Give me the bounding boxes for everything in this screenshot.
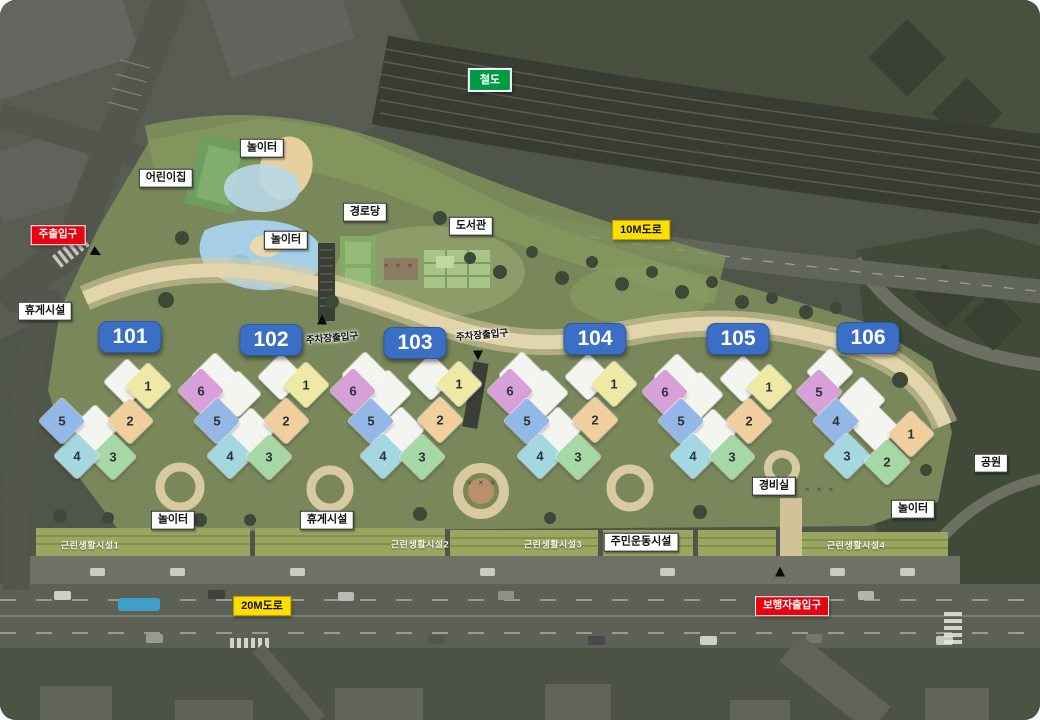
unit-number: 3 [716, 441, 749, 474]
site-map: 1234565432165432165432165432154321✕ ✕ ✕✕… [0, 0, 1040, 720]
building-badge-101[interactable]: 101 [98, 321, 161, 353]
unit-number: 5 [511, 405, 544, 438]
building-unit-102-1: 1 [283, 362, 330, 409]
unit-number: 3 [406, 441, 439, 474]
badge-railway: 철도 [468, 68, 512, 92]
unit-number: 5 [201, 405, 234, 438]
label-senior-center: 경로당 [343, 203, 387, 222]
building-unit-104-1: 1 [591, 361, 638, 408]
label-parking-entrance-2: 주차장출입구 [455, 325, 508, 344]
site-plan-screenshot: 1234565432165432165432165432154321✕ ✕ ✕✕… [0, 0, 1040, 720]
building-badge-104[interactable]: 104 [563, 323, 626, 355]
badge-pedestrian-entrance: 보행자출입구 [755, 596, 829, 616]
unit-number: 4 [214, 440, 247, 473]
building-badge-106[interactable]: 106 [836, 322, 899, 354]
building-unit-106-1: 1 [888, 411, 935, 458]
arrow-up-icon: ▲ [772, 563, 789, 580]
unit-number: 3 [562, 441, 595, 474]
unit-number: 1 [895, 418, 928, 451]
label-library: 도서관 [449, 217, 493, 236]
plaza-mark: ✕ ✕ ✕ [804, 486, 836, 494]
label-rest-area-left: 휴게시설 [18, 302, 72, 321]
label-overlay: 1234565432165432165432165432154321✕ ✕ ✕✕… [0, 0, 1040, 720]
building-unit-106-3: 3 [824, 433, 871, 480]
unit-number: 2 [270, 405, 303, 438]
arrow-up-icon: ▲ [314, 311, 331, 328]
building-unit-101-5: 5 [39, 398, 86, 445]
unit-number: 5 [46, 405, 79, 438]
unit-number: 4 [367, 440, 400, 473]
label-park: 공원 [974, 454, 1008, 473]
unit-number: 3 [831, 440, 864, 473]
unit-number: 2 [579, 404, 612, 437]
label-parking-entrance-1: 주차장출입구 [305, 328, 358, 347]
unit-number: 4 [61, 440, 94, 473]
building-badge-103[interactable]: 103 [383, 327, 446, 359]
building-badge-102[interactable]: 102 [239, 324, 302, 356]
unit-number: 3 [253, 441, 286, 474]
label-security-office: 경비실 [752, 477, 796, 496]
building-badge-105[interactable]: 105 [706, 323, 769, 355]
label-exercise-facility: 주민운동시설 [604, 533, 679, 552]
unit-number: 1 [598, 368, 631, 401]
unit-number: 4 [677, 440, 710, 473]
label-retail-2: 근린생활시설2 [391, 538, 449, 551]
label-retail-3: 근린생활시설3 [524, 538, 582, 551]
label-retail-4: 근린생활시설4 [827, 539, 885, 552]
label-rest-area-bottom: 휴게시설 [300, 511, 354, 530]
unit-number: 1 [753, 371, 786, 404]
badge-road-10m: 10M도로 [612, 220, 670, 240]
unit-number: 3 [97, 441, 130, 474]
unit-number: 4 [524, 440, 557, 473]
label-daycare: 어린이집 [139, 169, 193, 188]
label-playground-mid: 놀이터 [264, 231, 308, 250]
unit-number: 1 [132, 370, 165, 403]
unit-number: 2 [114, 405, 147, 438]
unit-number: 1 [443, 368, 476, 401]
unit-number: 1 [290, 369, 323, 402]
building-unit-105-1: 1 [746, 364, 793, 411]
arrow-right-icon: ▲ [86, 242, 109, 265]
plaza-mark: ✕ ✕ ✕ [466, 479, 498, 487]
label-retail-1: 근린생활시설1 [61, 539, 119, 552]
unit-number: 2 [424, 404, 457, 437]
plaza-mark: ✕ ✕ ✕ [383, 262, 415, 270]
badge-road-20m: 20M도로 [233, 596, 291, 616]
building-unit-103-1: 1 [436, 361, 483, 408]
unit-number: 4 [820, 405, 853, 438]
arrow-down-icon: ▲ [470, 348, 487, 365]
label-playground-top: 놀이터 [240, 139, 284, 158]
label-playground-bottom: 놀이터 [151, 511, 195, 530]
badge-main-entrance: 주출입구 [31, 225, 86, 245]
unit-number: 2 [733, 405, 766, 438]
label-playground-right: 놀이터 [891, 500, 935, 519]
